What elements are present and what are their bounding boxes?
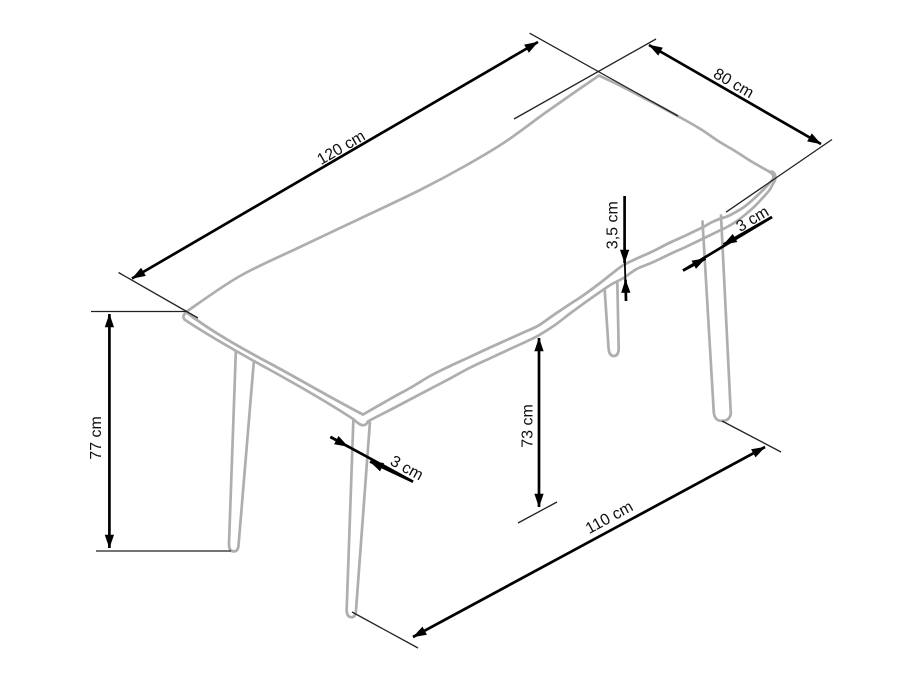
svg-text:77 cm: 77 cm bbox=[88, 416, 105, 460]
svg-text:3,5 cm: 3,5 cm bbox=[605, 201, 622, 249]
svg-text:73 cm: 73 cm bbox=[520, 404, 537, 448]
svg-text:80 cm: 80 cm bbox=[710, 66, 756, 103]
svg-text:120 cm: 120 cm bbox=[314, 128, 368, 169]
